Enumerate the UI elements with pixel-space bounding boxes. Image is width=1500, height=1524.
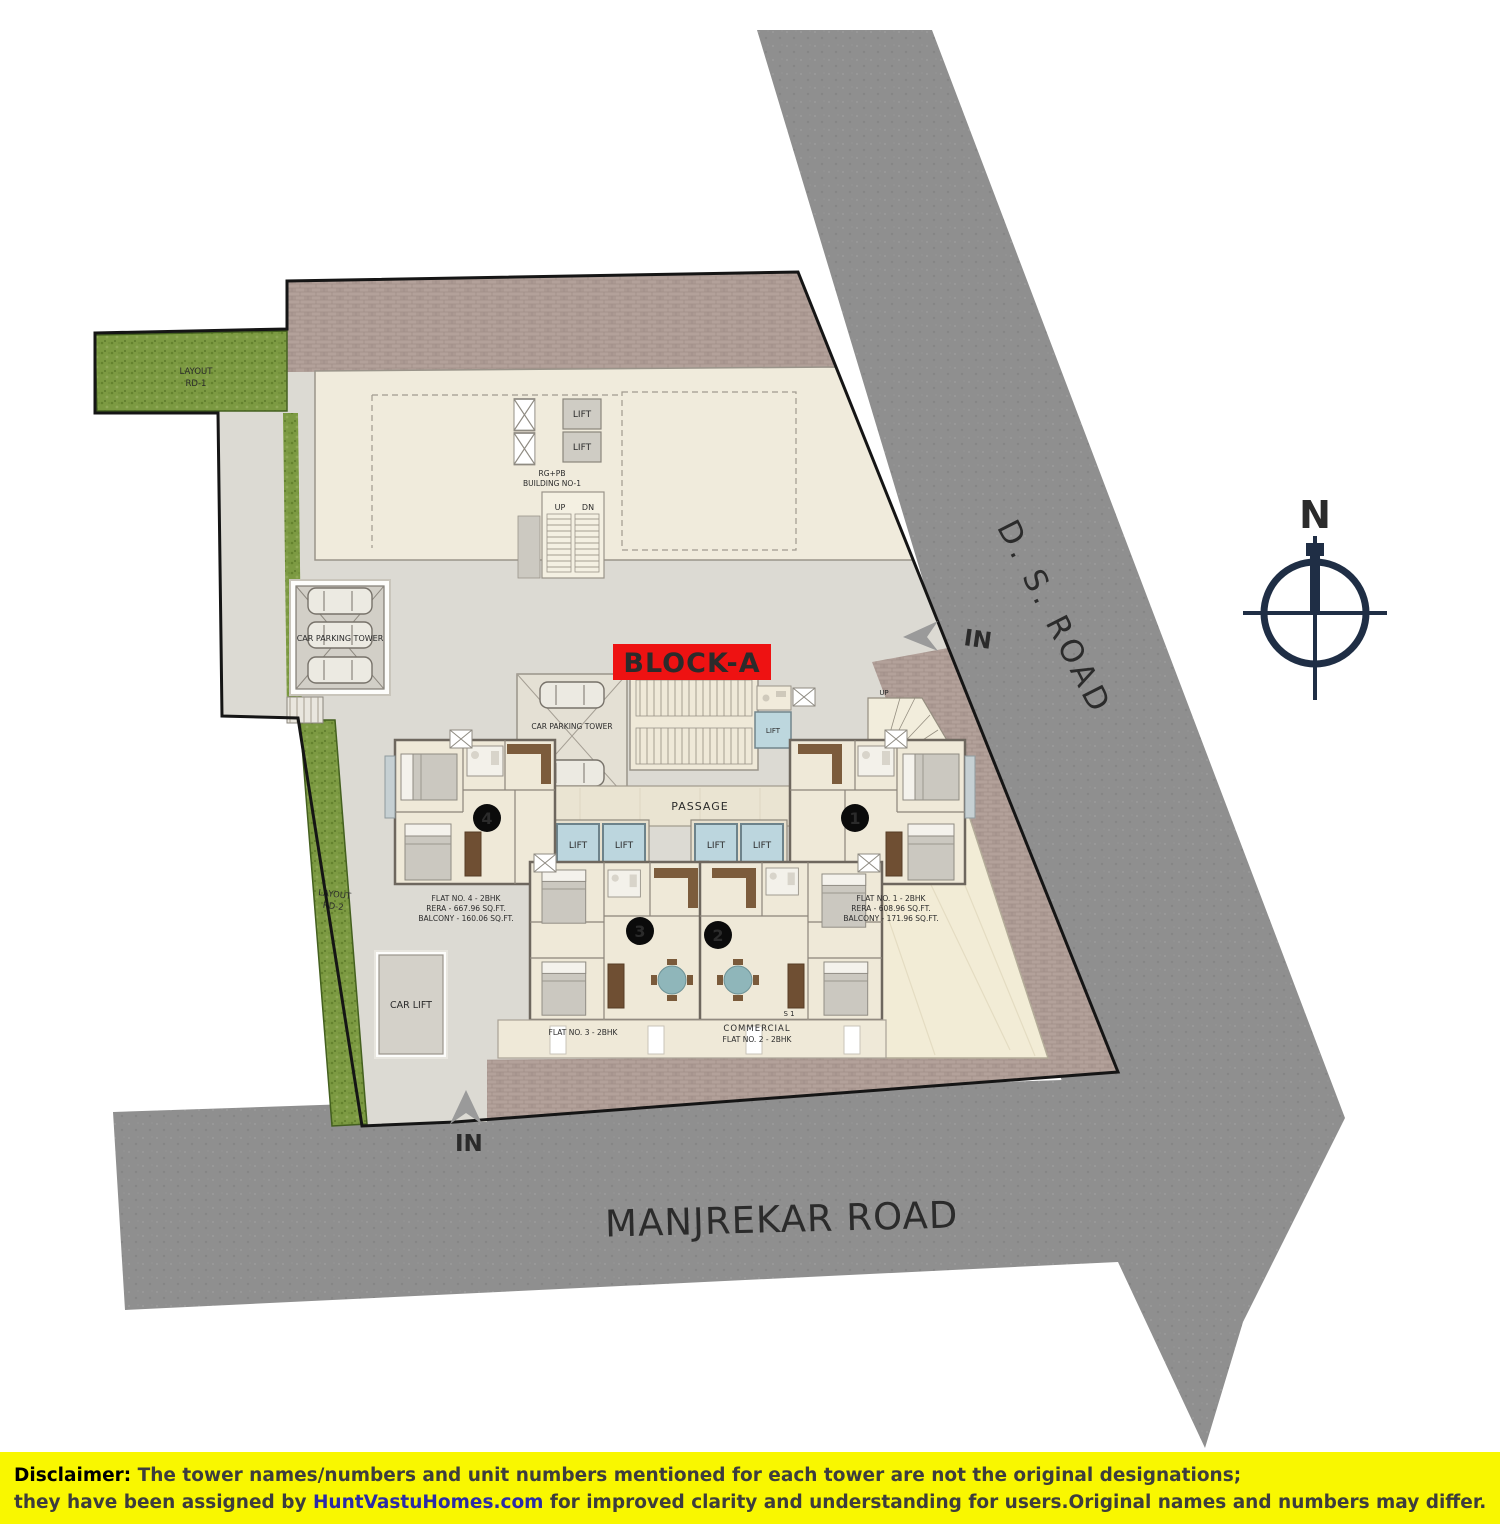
disclaimer-text-2b: for improved clarity and understanding f… — [543, 1492, 1486, 1513]
car-parking-tower-left-label: CAR PARKING TOWER — [297, 634, 384, 643]
unit-badge-3-num: 3 — [634, 922, 645, 941]
lift-label: LIFT — [707, 841, 726, 851]
top-building-name-line1: RG+PB — [539, 469, 566, 478]
unit-badge-4-num: 4 — [481, 809, 492, 828]
car-lift: CAR LIFT — [375, 951, 447, 1058]
unit-badge-1-num: 1 — [849, 809, 860, 828]
lift-label: LIFT — [569, 841, 588, 851]
flat-4-rera: RERA - 667.96 SQ.FT. — [426, 904, 505, 913]
core-lift-label: LIFT — [766, 727, 781, 735]
site-plan-drawing: LAYOUT RD-1 LAYOUT RD-2 LIFT LIFT RG+PB … — [0, 0, 1500, 1524]
flat-1-name: FLAT NO. 1 - 2BHK — [857, 894, 927, 903]
shop-label: S 1 — [783, 1010, 794, 1018]
brand-name: HuntVastuHomes.com — [313, 1492, 544, 1513]
top-building: LIFT LIFT RG+PB BUILDING NO-1 UP DN — [315, 367, 913, 578]
flat-1-rera: RERA - 608.96 SQ.FT. — [851, 904, 930, 913]
spiral-stair-up-label: UP — [879, 689, 888, 697]
stair-up-label: UP — [555, 503, 566, 512]
top-building-stair: UP DN — [542, 492, 604, 578]
disclaimer-strip: Disclaimer: The tower names/numbers and … — [0, 1452, 1500, 1524]
lift-label: LIFT — [753, 841, 772, 851]
disclaimer-text-2a: they have been assigned by — [14, 1492, 313, 1513]
site-plan-canvas: LAYOUT RD-1 LAYOUT RD-2 LIFT LIFT RG+PB … — [0, 0, 1500, 1524]
unit-3-wing — [530, 854, 708, 1029]
flat-4-balcony: BALCONY - 160.06 SQ.FT. — [418, 914, 513, 923]
stair-dn-label: DN — [582, 503, 594, 512]
top-lift-1-label: LIFT — [573, 410, 592, 420]
manjrekar-road — [113, 1080, 1243, 1448]
block-a-text: BLOCK-A — [623, 648, 760, 679]
east-in-label: IN — [962, 625, 993, 655]
central-stair — [630, 674, 758, 770]
disclaimer-line-2: they have been assigned by HuntVastuHome… — [14, 1489, 1490, 1516]
layout-rd1-label-word: LAYOUT — [180, 367, 214, 377]
passage-label: PASSAGE — [671, 800, 728, 813]
disclaimer-label: Disclaimer: — [14, 1465, 131, 1486]
north-label: N — [1299, 493, 1331, 537]
car-parking-tower-center-label: CAR PARKING TOWER — [531, 722, 612, 731]
plinth-band — [498, 1020, 886, 1058]
commercial-label: COMMERCIAL — [723, 1024, 790, 1034]
disclaimer-line-1: Disclaimer: The tower names/numbers and … — [14, 1462, 1490, 1489]
lift-label: LIFT — [615, 841, 634, 851]
flat-1-balcony: BALCONY - 171.96 SQ.FT. — [843, 914, 938, 923]
flat-4-name: FLAT NO. 4 - 2BHK — [432, 894, 502, 903]
flat-3-name: FLAT NO. 3 - 2BHK — [549, 1028, 619, 1037]
car-parking-tower-left: CAR PARKING TOWER — [290, 580, 390, 695]
unit-badge-2-num: 2 — [712, 926, 723, 945]
compass: N — [1243, 493, 1387, 700]
compass-needle — [1310, 548, 1320, 613]
south-in-label: IN — [455, 1131, 483, 1157]
block-a-label: BLOCK-A — [613, 644, 771, 680]
disclaimer-text-1: The tower names/numbers and unit numbers… — [131, 1465, 1241, 1486]
top-lift-2-label: LIFT — [573, 443, 592, 453]
car-lift-label: CAR LIFT — [390, 1000, 432, 1011]
flat-2-name: FLAT NO. 2 - 2BHK — [723, 1035, 793, 1044]
layout-rd1-label-num: RD-1 — [186, 379, 207, 389]
top-building-name-line2: BUILDING NO-1 — [523, 479, 581, 488]
